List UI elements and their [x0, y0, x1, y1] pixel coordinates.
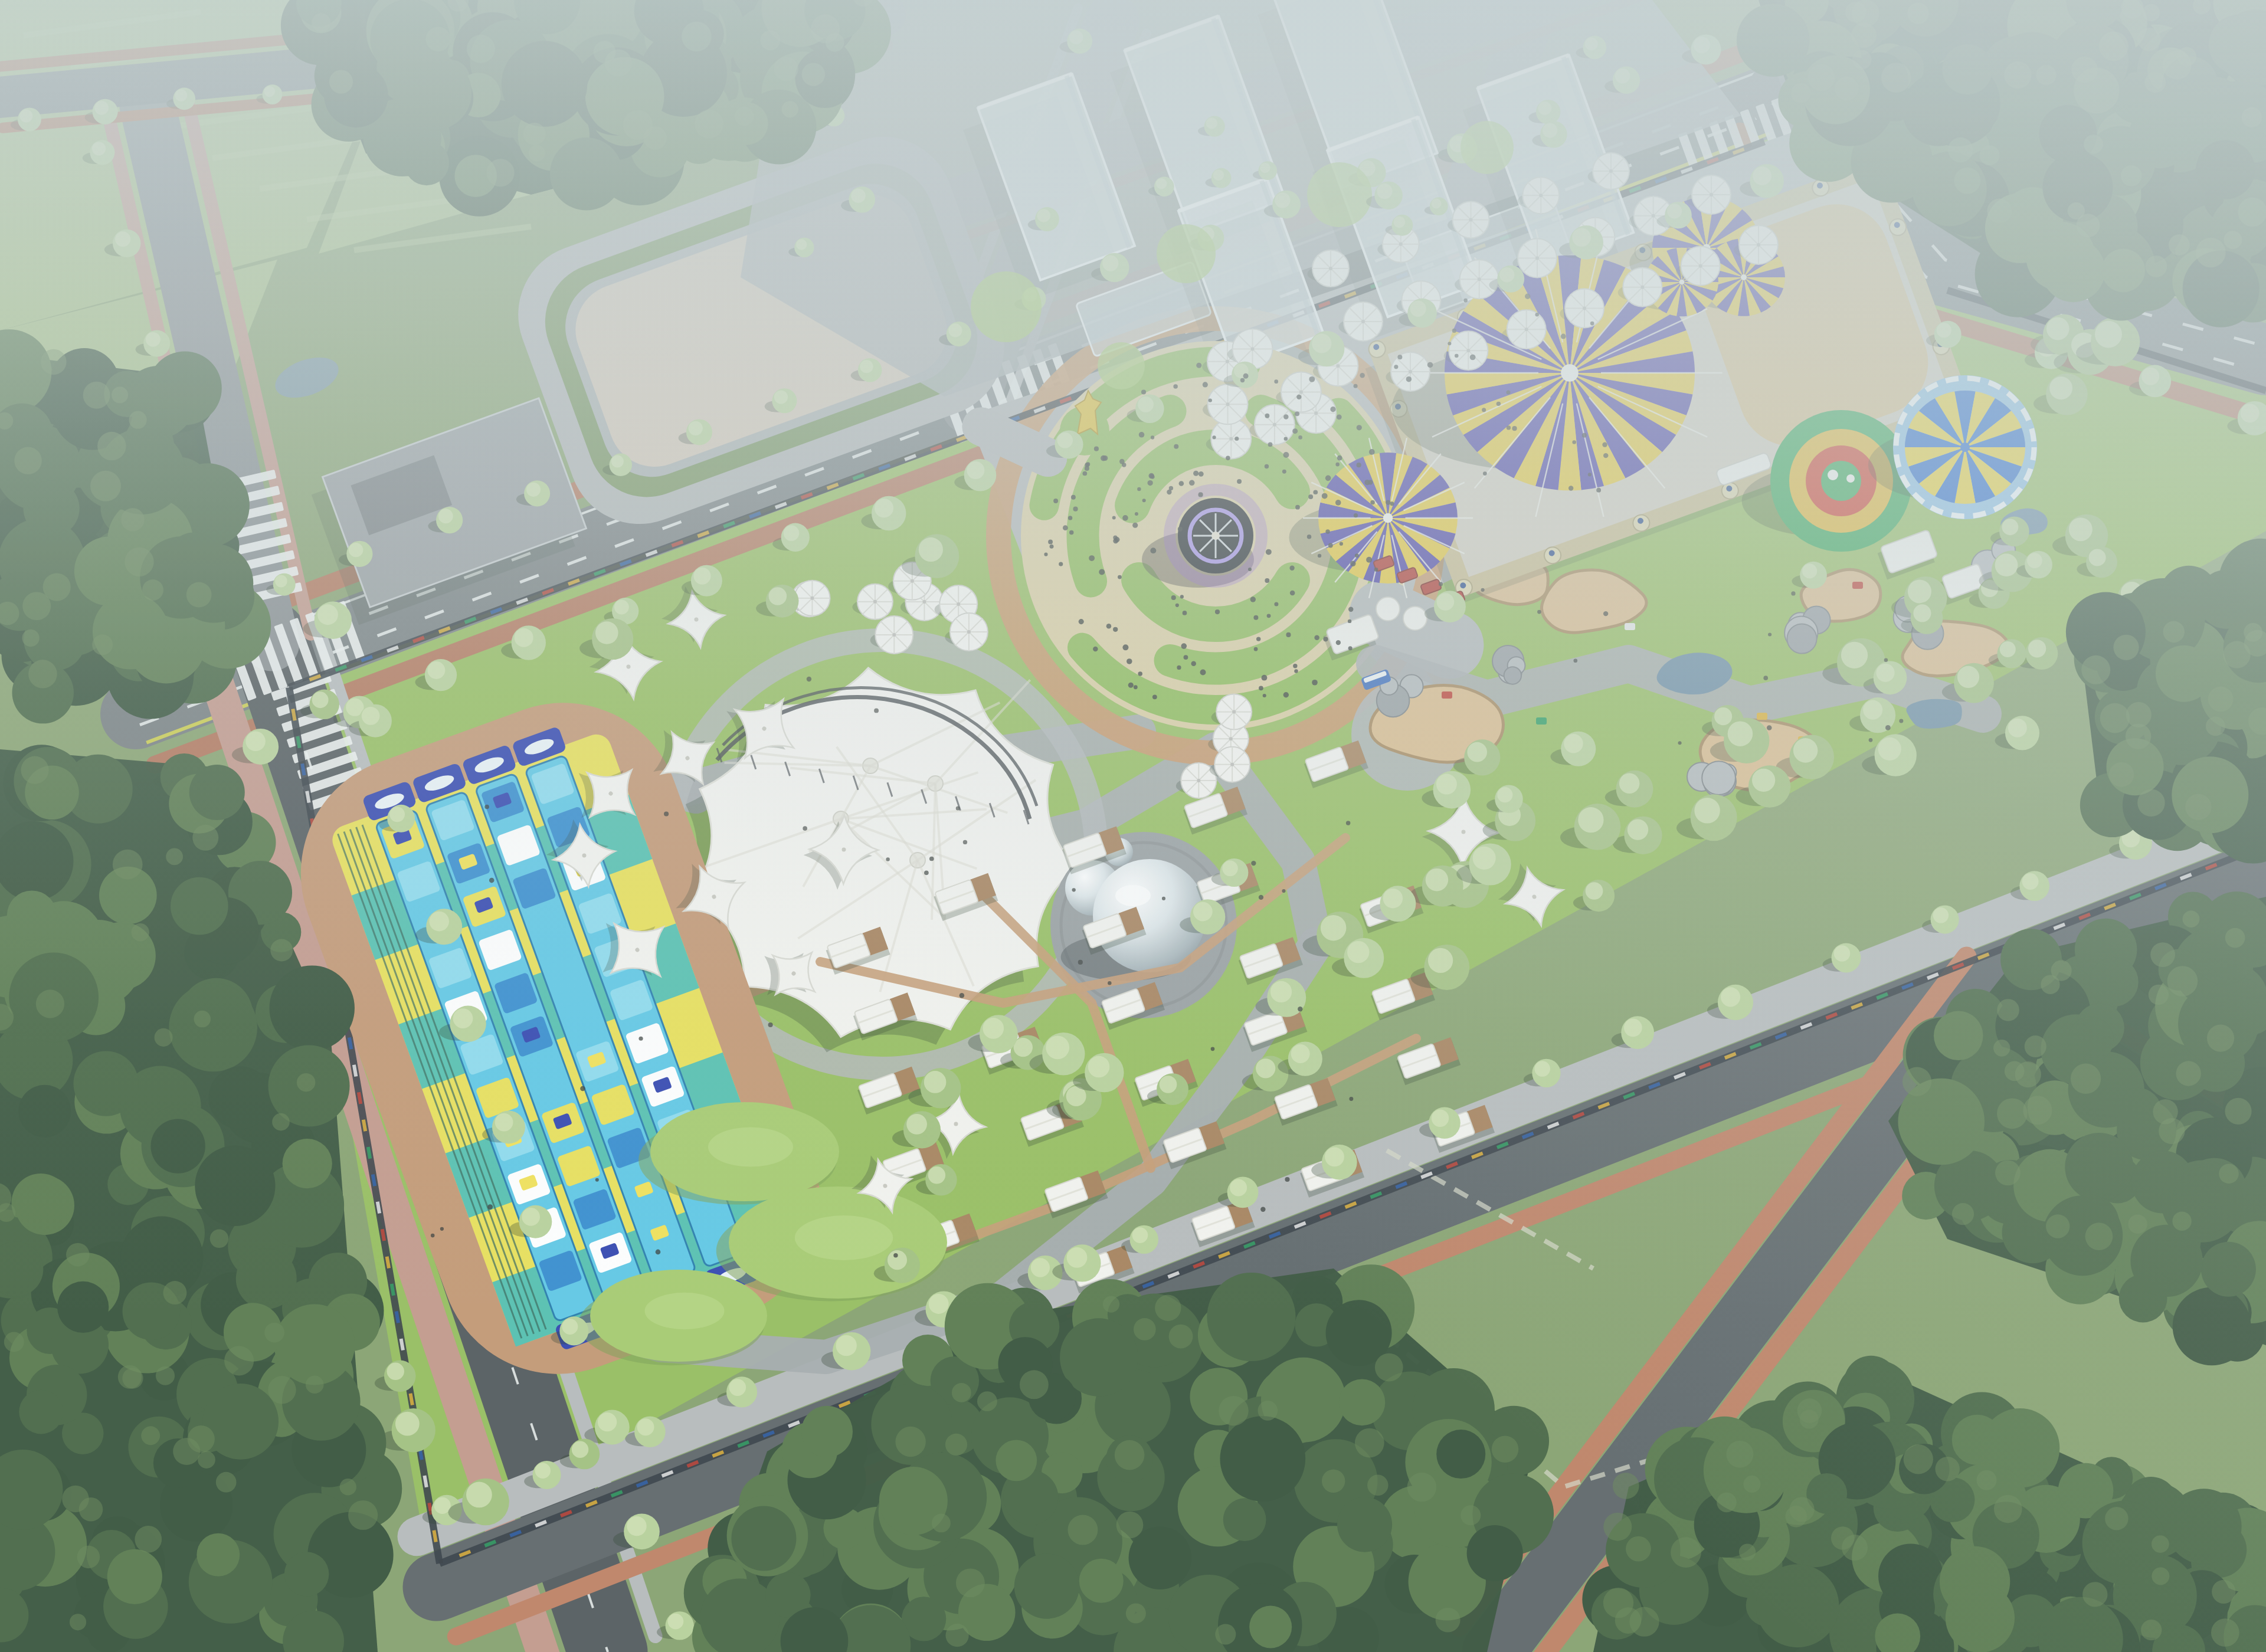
scene-svg	[0, 0, 2266, 1652]
aerial-render	[0, 0, 2266, 1652]
haze-overlay	[0, 0, 2266, 1652]
